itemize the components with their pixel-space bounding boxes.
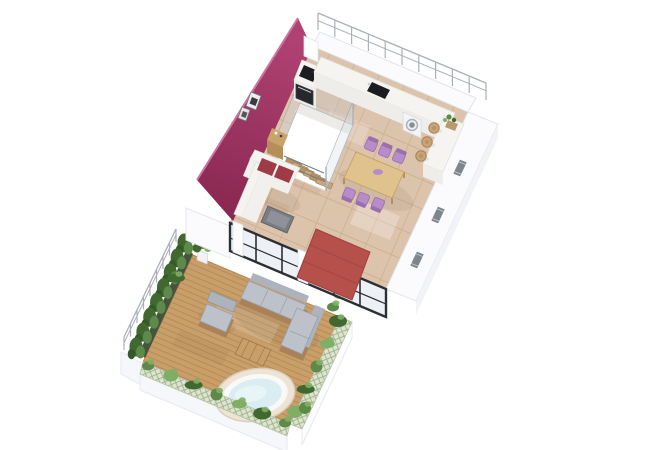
- hedge-bush: [184, 242, 193, 255]
- hedge-bush: [136, 346, 145, 359]
- hedge-bush: [177, 256, 186, 269]
- floor-plan-render: [0, 0, 650, 450]
- hedge-bush: [163, 286, 172, 299]
- ivy-cluster: [239, 397, 246, 403]
- hedge-bush: [128, 349, 136, 359]
- ivy-cluster: [285, 416, 292, 422]
- ivy-cluster: [305, 401, 312, 407]
- ivy-cluster: [338, 314, 345, 320]
- floor-plan-stage: [0, 0, 650, 450]
- ivy-cluster: [316, 360, 323, 366]
- hedge-bush: [157, 301, 166, 314]
- ivy-cluster: [262, 407, 269, 413]
- planter-foliage: [446, 114, 451, 119]
- door-pier: [233, 221, 243, 256]
- bar-stool-seat: [432, 126, 436, 130]
- sideboard-decor: [275, 132, 278, 135]
- hedge-bush: [150, 316, 159, 329]
- ivy-cluster: [216, 388, 223, 394]
- ivy-cluster: [333, 300, 340, 306]
- table-decor: [373, 169, 383, 175]
- planter-foliage: [452, 118, 456, 122]
- bar-stool-seat: [425, 140, 429, 144]
- ivy-cluster: [327, 337, 334, 343]
- ivy-cluster: [148, 359, 155, 365]
- planter-foliage: [443, 118, 447, 122]
- ivy-cluster: [305, 382, 312, 388]
- washer-drum: [409, 122, 415, 128]
- hedge-bush: [143, 331, 152, 344]
- bar-stool-seat: [419, 154, 423, 158]
- ivy-cluster: [193, 378, 200, 384]
- ivy-cluster: [176, 271, 183, 277]
- ivy-cluster: [170, 369, 177, 375]
- sideboard-decor: [280, 135, 283, 138]
- faucet: [368, 83, 371, 86]
